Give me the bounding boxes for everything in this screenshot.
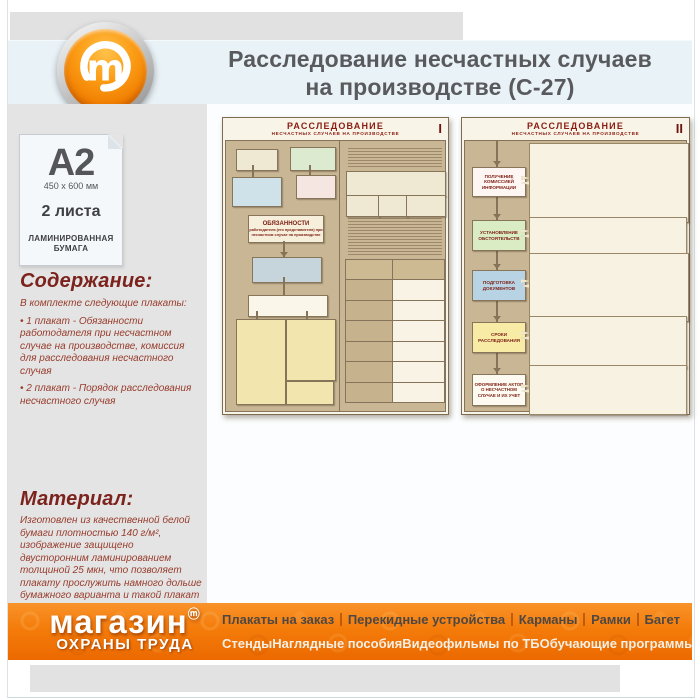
trademark-icon: ⓜ (188, 607, 201, 621)
flow-box (346, 171, 446, 197)
connector-line (306, 311, 308, 319)
poster1-paragraph (346, 145, 444, 171)
menu-item-naglyadnye-posobiya[interactable]: Наглядные пособия (272, 636, 402, 651)
connector-line (283, 277, 285, 295)
menu-item-videofilmy-po-tb[interactable]: Видеофильмы по ТБ (402, 636, 539, 651)
connector-line (309, 165, 311, 175)
arrowhead-icon (493, 161, 501, 166)
arrowhead-icon (493, 368, 501, 373)
flow-box (252, 257, 322, 283)
paper-size-label: 450 x 600 мм (20, 181, 122, 191)
paper-format-label: A2 (20, 145, 122, 181)
poster2-step-box: ПОЛУЧЕНИЕ КОМИССИЕЙ ИНФОРМАЦИИ (472, 167, 526, 197)
menu-item-baget[interactable]: Багет (645, 612, 680, 627)
poster1-divider (339, 141, 340, 411)
flow-box (378, 195, 408, 217)
contents-heading: Содержание: (20, 270, 198, 293)
table-row (346, 321, 444, 340)
store-logo-name: магазинⓜ (24, 607, 226, 637)
menu-item-obuchayushchie-programmy[interactable]: Обучающие программы (540, 636, 692, 651)
poster2-text-panel (529, 253, 689, 322)
menu-item-posters-na-zakaz[interactable]: Плакаты на заказ (222, 612, 334, 627)
menu-item-ramki[interactable]: Рамки (591, 612, 631, 627)
table-row (346, 260, 444, 279)
table-row (346, 383, 444, 402)
menu-item-perekidnye-ustroystva[interactable]: Перекидные устройства (348, 612, 505, 627)
poster2-text-panel (529, 316, 687, 369)
duties-heading: ОБЯЗАННОСТИ (263, 221, 310, 228)
bottom-gray-band (30, 665, 620, 692)
poster2-step-box: ПОДГОТОВКА ДОКУМЕНТОВ (472, 270, 526, 301)
poster1-header: РАССЛЕДОВАНИЕ НЕСЧАСТНЫХ СЛУЧАЕВ НА ПРОИ… (223, 118, 448, 140)
paper-format-icon: A2 450 x 600 мм 2 листа ЛАМИНИРОВАННАЯ Б… (19, 134, 123, 266)
arrowhead-icon (493, 264, 501, 269)
contents-intro: В комплекте следующие плакаты: (20, 298, 198, 311)
product-info-sidebar: A2 450 x 600 мм 2 листа ЛАМИНИРОВАННАЯ Б… (8, 104, 207, 603)
flow-box (232, 177, 282, 207)
poster2-step-box: СРОКИ РАССЛЕДОВАНИЯ (472, 322, 526, 353)
table-row (346, 280, 444, 299)
site-logo-circle: m (64, 29, 147, 112)
poster2-title: РАССЛЕДОВАНИЕ (462, 118, 689, 131)
poster1-title: РАССЛЕДОВАНИЕ (223, 118, 448, 131)
menu-separator (637, 613, 639, 626)
poster-thumbnail-1[interactable]: РАССЛЕДОВАНИЕ НЕСЧАСТНЫХ СЛУЧАЕВ НА ПРОИ… (222, 117, 449, 415)
footer-menu-row-2: Стенды Наглядные пособия Видеофильмы по … (222, 634, 680, 652)
poster2-text-panel (529, 217, 687, 257)
connector-line (252, 165, 254, 177)
flow-box (286, 381, 334, 405)
page-title-line1: Расследование несчастных случаев (190, 45, 690, 73)
footer-bar: магазинⓜ ОХРАНЫ ТРУДА Плакаты на заказ П… (8, 603, 692, 660)
arrowhead-icon (493, 214, 501, 219)
poster1-body: ОБЯЗАННОСТИ работодателя (его представит… (225, 140, 446, 412)
poster1-numeral: I (438, 121, 442, 136)
page-title: Расследование несчастных случаев на прои… (190, 45, 690, 101)
flow-box (296, 175, 336, 199)
poster2-text-panel (529, 143, 689, 223)
contents-item-1: • 1 плакат - Обязанности работодателя пр… (20, 316, 198, 379)
flow-box (248, 295, 328, 317)
flow-box (290, 147, 336, 171)
table-row (346, 301, 444, 320)
flow-box (406, 195, 446, 217)
flow-box (346, 195, 380, 217)
poster2-step-box: ОФОРМЛЕНИЕ АКТОВ О НЕСЧАСТНОМ СЛУЧАЕ И И… (472, 374, 526, 406)
connector-line (256, 311, 258, 319)
poster1-subtitle: НЕСЧАСТНЫХ СЛУЧАЕВ НА ПРОИЗВОДСТВЕ (223, 131, 448, 137)
poster2-header: РАССЛЕДОВАНИЕ НЕСЧАСТНЫХ СЛУЧАЕВ НА ПРОИ… (462, 118, 689, 140)
table-row (346, 362, 444, 381)
poster2-subtitle: НЕСЧАСТНЫХ СЛУЧАЕВ НА ПРОИЗВОДСТВЕ (462, 131, 689, 137)
menu-separator (511, 613, 513, 626)
table-row (346, 342, 444, 361)
arrowhead-icon (493, 316, 501, 321)
m-logo-icon: m (64, 29, 147, 112)
flow-box (236, 149, 278, 171)
poster2-step-box: УСТАНОВЛЕНИЕ ОБСТОЯТЕЛЬСТВ (472, 220, 526, 251)
contents-section: Содержание: В комплекте следующие плакат… (20, 270, 198, 408)
contents-item-2: • 2 плакат - Порядок расследования несча… (20, 383, 198, 408)
footer-menu-row-1: Плакаты на заказ Перекидные устройства К… (222, 610, 680, 628)
paper-corner-fold-icon (108, 135, 122, 149)
flow-box (286, 319, 336, 381)
poster1-table (345, 259, 445, 403)
svg-text:m: m (86, 46, 124, 89)
poster2-body: ПОЛУЧЕНИЕ КОМИССИЕЙ ИНФОРМАЦИИ УСТАНОВЛЕ… (464, 140, 687, 412)
page-title-line2: на производстве (С-27) (190, 73, 690, 101)
poster1-paragraph (346, 215, 444, 259)
store-logo[interactable]: магазинⓜ ОХРАНЫ ТРУДА (24, 607, 226, 652)
material-heading: Материал: (20, 488, 202, 511)
menu-separator (340, 613, 342, 626)
flow-box (236, 319, 286, 405)
paper-type-label: ЛАМИНИРОВАННАЯ БУМАГА (20, 234, 122, 254)
menu-separator (583, 613, 585, 626)
sheet-count-label: 2 листа (20, 203, 122, 221)
menu-item-stendy[interactable]: Стенды (222, 636, 272, 651)
poster2-numeral: II (676, 121, 683, 136)
poster-thumbnail-2[interactable]: РАССЛЕДОВАНИЕ НЕСЧАСТНЫХ СЛУЧАЕВ НА ПРОИ… (461, 117, 690, 415)
poster1-duties-box: ОБЯЗАННОСТИ работодателя (его представит… (248, 215, 324, 243)
duties-subtitle: работодателя (его представителя) при нес… (249, 228, 323, 237)
menu-item-karmany[interactable]: Карманы (519, 612, 578, 627)
poster2-text-panel (529, 365, 687, 415)
